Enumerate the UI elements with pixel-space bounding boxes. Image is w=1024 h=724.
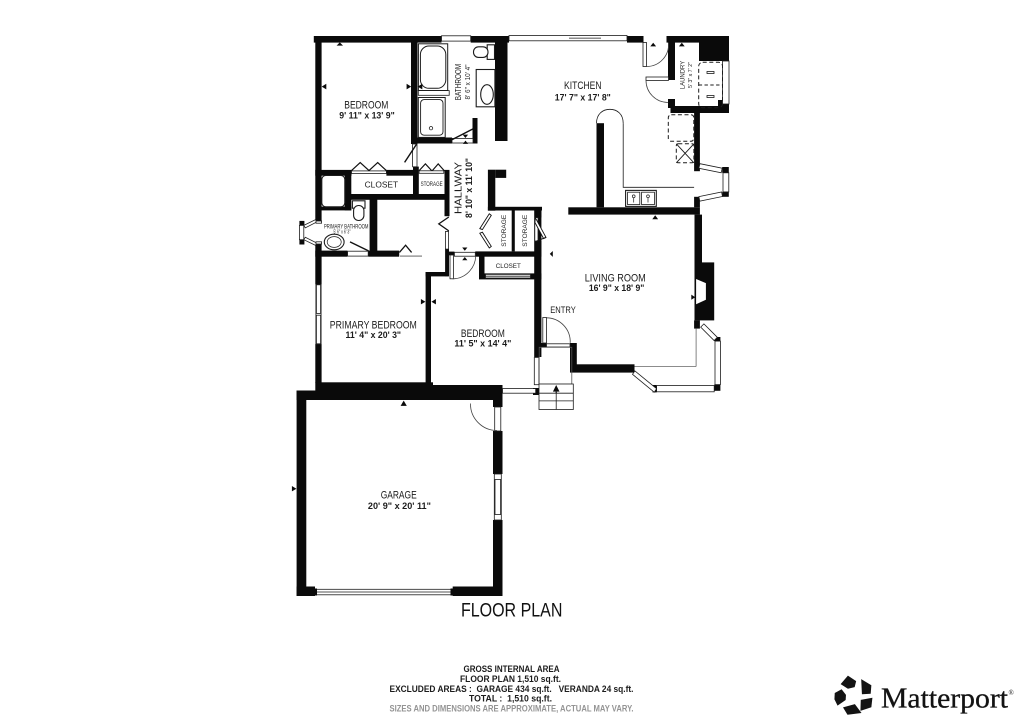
svg-text:Matterport: Matterport — [881, 684, 1008, 715]
svg-text:8' 10" x 11' 10": 8' 10" x 11' 10" — [464, 158, 474, 218]
svg-text:FLOOR PLAN 1,510 sq.ft.: FLOOR PLAN 1,510 sq.ft. — [460, 674, 561, 684]
svg-text:KITCHEN: KITCHEN — [564, 80, 602, 92]
svg-text:CLOSET: CLOSET — [365, 179, 399, 189]
svg-text:STORAGE: STORAGE — [523, 215, 529, 247]
svg-text:STORAGE: STORAGE — [502, 215, 508, 247]
svg-text:17' 7" x 17' 8": 17' 7" x 17' 8" — [555, 92, 611, 102]
svg-text:CLOSET: CLOSET — [496, 263, 521, 270]
svg-text:20' 9" x 20' 11": 20' 9" x 20' 11" — [368, 501, 431, 511]
svg-text:ENTRY: ENTRY — [550, 305, 576, 316]
svg-text:16' 9" x 18' 9": 16' 9" x 18' 9" — [589, 283, 645, 293]
svg-text:STORAGE: STORAGE — [421, 181, 443, 188]
svg-text:BATHROOM: BATHROOM — [454, 63, 463, 100]
svg-text:5' 3" x 7' 2": 5' 3" x 7' 2" — [688, 62, 694, 88]
svg-text:9' 11" x 13' 9": 9' 11" x 13' 9" — [339, 110, 395, 120]
svg-text:FLOOR PLAN: FLOOR PLAN — [461, 600, 563, 621]
svg-text:11' 4" x 20' 3": 11' 4" x 20' 3" — [346, 330, 402, 340]
svg-text:EXCLUDED AREAS : GARAGE 434 s: EXCLUDED AREAS : GARAGE 434 sq.ft. VERAN… — [390, 684, 634, 694]
svg-text:GARAGE: GARAGE — [381, 489, 417, 501]
svg-text:HALLWAY: HALLWAY — [453, 162, 464, 214]
svg-text:5' 6" x 6' 3": 5' 6" x 6' 3" — [334, 229, 351, 235]
svg-text:LAUNDRY: LAUNDRY — [680, 61, 686, 90]
svg-text:11' 5" x 14' 4": 11' 5" x 14' 4" — [454, 339, 511, 349]
svg-text:TOTAL : 1,510 sq.ft.: TOTAL : 1,510 sq.ft. — [469, 693, 552, 703]
svg-text:8' 6" x 10' 4": 8' 6" x 10' 4" — [463, 64, 472, 99]
svg-text:GROSS INTERNAL AREA: GROSS INTERNAL AREA — [464, 664, 560, 674]
svg-text:®: ® — [1009, 689, 1015, 697]
svg-text:SIZES AND DIMENSIONS ARE APPRO: SIZES AND DIMENSIONS ARE APPROXIMATE, AC… — [390, 703, 634, 713]
